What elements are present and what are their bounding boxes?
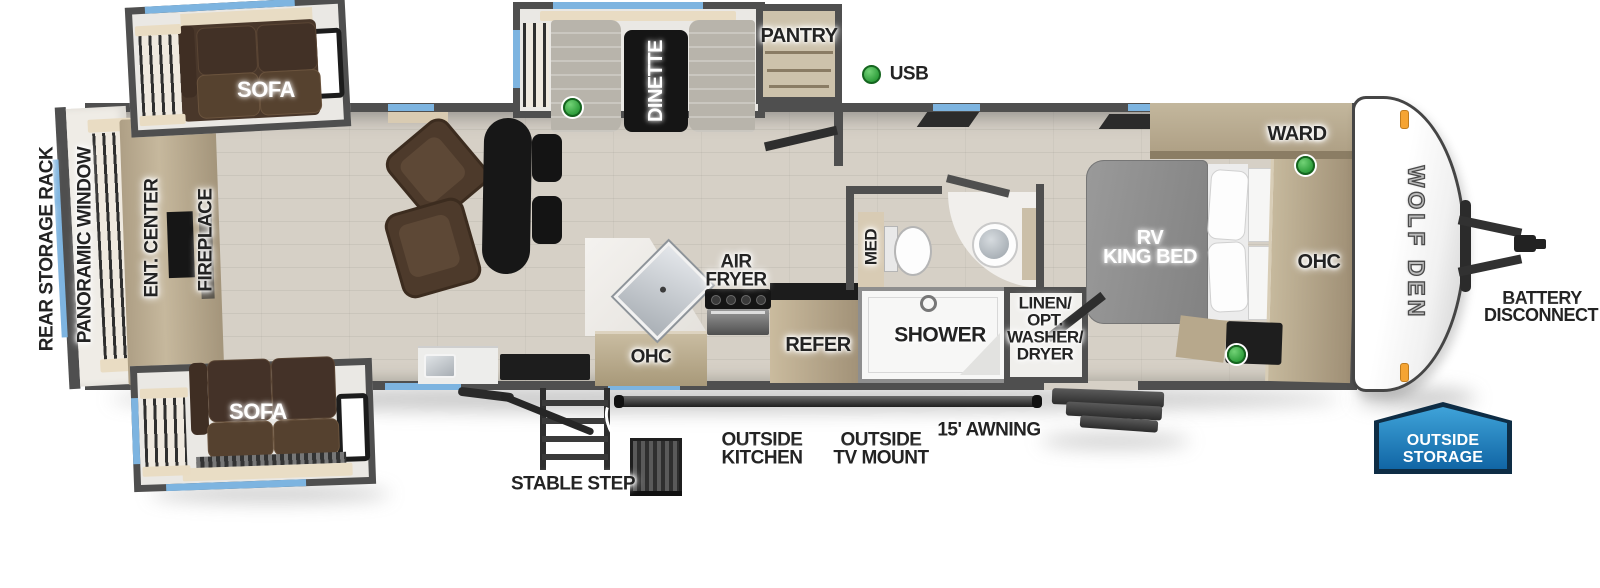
ward-underside [1150, 151, 1352, 159]
roof-vent-1 [917, 112, 980, 127]
step-rung [542, 436, 608, 442]
oven-handle [711, 311, 765, 314]
bath-wall-left [846, 186, 854, 290]
burner [726, 295, 736, 305]
shower-head [920, 295, 937, 312]
tv-inset [167, 211, 195, 278]
sofa-back-cushion [256, 22, 318, 73]
label-fireplace: FIREPLACE [197, 188, 216, 291]
label-linen-line2: OPT. [1027, 312, 1063, 329]
label-rv-king-bed-line2: KING BED [1103, 247, 1197, 267]
window-top-1 [388, 104, 434, 111]
sofa-back-cushion [196, 25, 258, 76]
pantry-closet [756, 4, 842, 104]
pillow-2 [1207, 241, 1249, 313]
hitch-tip [1534, 239, 1546, 249]
slideout-blinds [523, 23, 549, 107]
chair-cushion [397, 134, 469, 206]
label-linen-line3: WASHER/ [1007, 329, 1083, 346]
label-air-fryer-line2: FRYER [705, 271, 766, 290]
label-med: MED [863, 229, 880, 265]
clearance-light-bottom [1400, 363, 1409, 382]
tongue-jack [1460, 200, 1471, 292]
sofa-slideout-top [125, 0, 352, 138]
vanity-sink [972, 222, 1018, 268]
window-bottom-1 [385, 383, 461, 390]
slideout-blinds [138, 34, 182, 118]
outside-kitchen-griddle-top [500, 354, 590, 380]
label-usb: USB [890, 65, 929, 84]
sofa-seat-cushion [207, 420, 274, 458]
label-stable-step: STABLE STEP [511, 475, 635, 494]
label-dinette: DINETTE [646, 40, 666, 122]
sofa-slideout-bottom [130, 358, 376, 492]
awning-roller [614, 396, 1042, 407]
label-ohc-kitchen: OHC [631, 348, 672, 367]
valance [139, 114, 185, 126]
awning-end-cap [1032, 395, 1042, 408]
label-rear-storage-rack: REAR STORAGE RACK [38, 147, 57, 351]
label-ward: WARD [1267, 124, 1326, 144]
usb-indicator-dot [1227, 345, 1246, 364]
pantry-shelf [769, 85, 829, 88]
stool-2 [532, 196, 562, 244]
label-panoramic-window: PANORAMIC WINDOW [76, 147, 95, 343]
brand-logo: WOLF DEN [1403, 166, 1430, 321]
step-rung [542, 400, 608, 406]
label-awning: 15' AWNING [937, 421, 1040, 440]
sink-bowl [979, 229, 1009, 259]
pantry-shelf [767, 69, 831, 72]
dinette-bench-right [689, 20, 755, 132]
label-outside-storage-line2: STORAGE [1403, 450, 1483, 466]
label-linen-line4: DRYER [1017, 346, 1073, 363]
griddle-base [630, 491, 682, 496]
label-ohc-bedroom: OHC [1298, 252, 1341, 272]
bath-wall-right [1036, 184, 1044, 290]
label-outside-storage-line1: OUTSIDE [1407, 433, 1480, 449]
usb-indicator-dot [563, 98, 582, 117]
burner [756, 295, 766, 305]
label-outside-kitchen-line2: KITCHEN [722, 449, 803, 468]
refrigerator [770, 283, 858, 383]
floorplan-canvas: WOLF DEN REAR STORAGE RACK PANORAMIC WIN… [0, 0, 1600, 588]
oven [707, 309, 769, 335]
label-ent-center: ENT. CENTER [143, 178, 162, 297]
label-pantry: PANTRY [761, 26, 838, 46]
pantry-shelf [765, 51, 833, 54]
portable-griddle [630, 438, 682, 496]
label-linen-line1: LINEN/ [1019, 295, 1072, 312]
slideout-window-strip [131, 398, 140, 464]
refer-counter-top [770, 283, 858, 300]
usb-indicator-dot [862, 65, 881, 84]
slideout-window-strip [513, 30, 520, 88]
sofa-body [178, 19, 321, 122]
label-refer: REFER [785, 335, 850, 355]
step-rung [542, 454, 608, 460]
pub-table [482, 118, 533, 275]
label-rv-king-bed-line1: RV [1137, 228, 1163, 248]
hitch-coupler [1514, 235, 1536, 252]
outside-kitchen-sink [424, 354, 456, 378]
chair-cushion [397, 213, 462, 279]
bath-wall-top [846, 186, 942, 194]
valance [142, 465, 190, 477]
label-outside-tv-mount-line2: TV MOUNT [833, 449, 928, 468]
usb-indicator-dot [1296, 156, 1315, 175]
burner [741, 295, 751, 305]
label-battery-disconnect-line2: DISCONNECT [1484, 306, 1598, 324]
hall-wall [834, 108, 843, 166]
range-cooktop [705, 289, 771, 309]
pillow-1 [1207, 169, 1250, 241]
toilet-bowl [894, 226, 932, 276]
slideout-window-strip [553, 2, 703, 9]
label-sofa-top: SOFA [237, 79, 295, 101]
foot-dresser [1176, 315, 1229, 363]
label-shower: SHOWER [894, 325, 986, 346]
steps-shadow [1040, 434, 1190, 448]
sink-drain [659, 285, 667, 293]
dinette-bench-left [551, 20, 621, 132]
clearance-light-top [1400, 110, 1409, 129]
window-top-2 [933, 104, 980, 111]
stool-1 [532, 134, 562, 182]
valance [140, 387, 188, 399]
burner [711, 295, 721, 305]
label-sofa-bottom: SOFA [229, 401, 287, 423]
outside-kitchen-counter [418, 346, 498, 384]
slideout-blinds [143, 397, 187, 468]
